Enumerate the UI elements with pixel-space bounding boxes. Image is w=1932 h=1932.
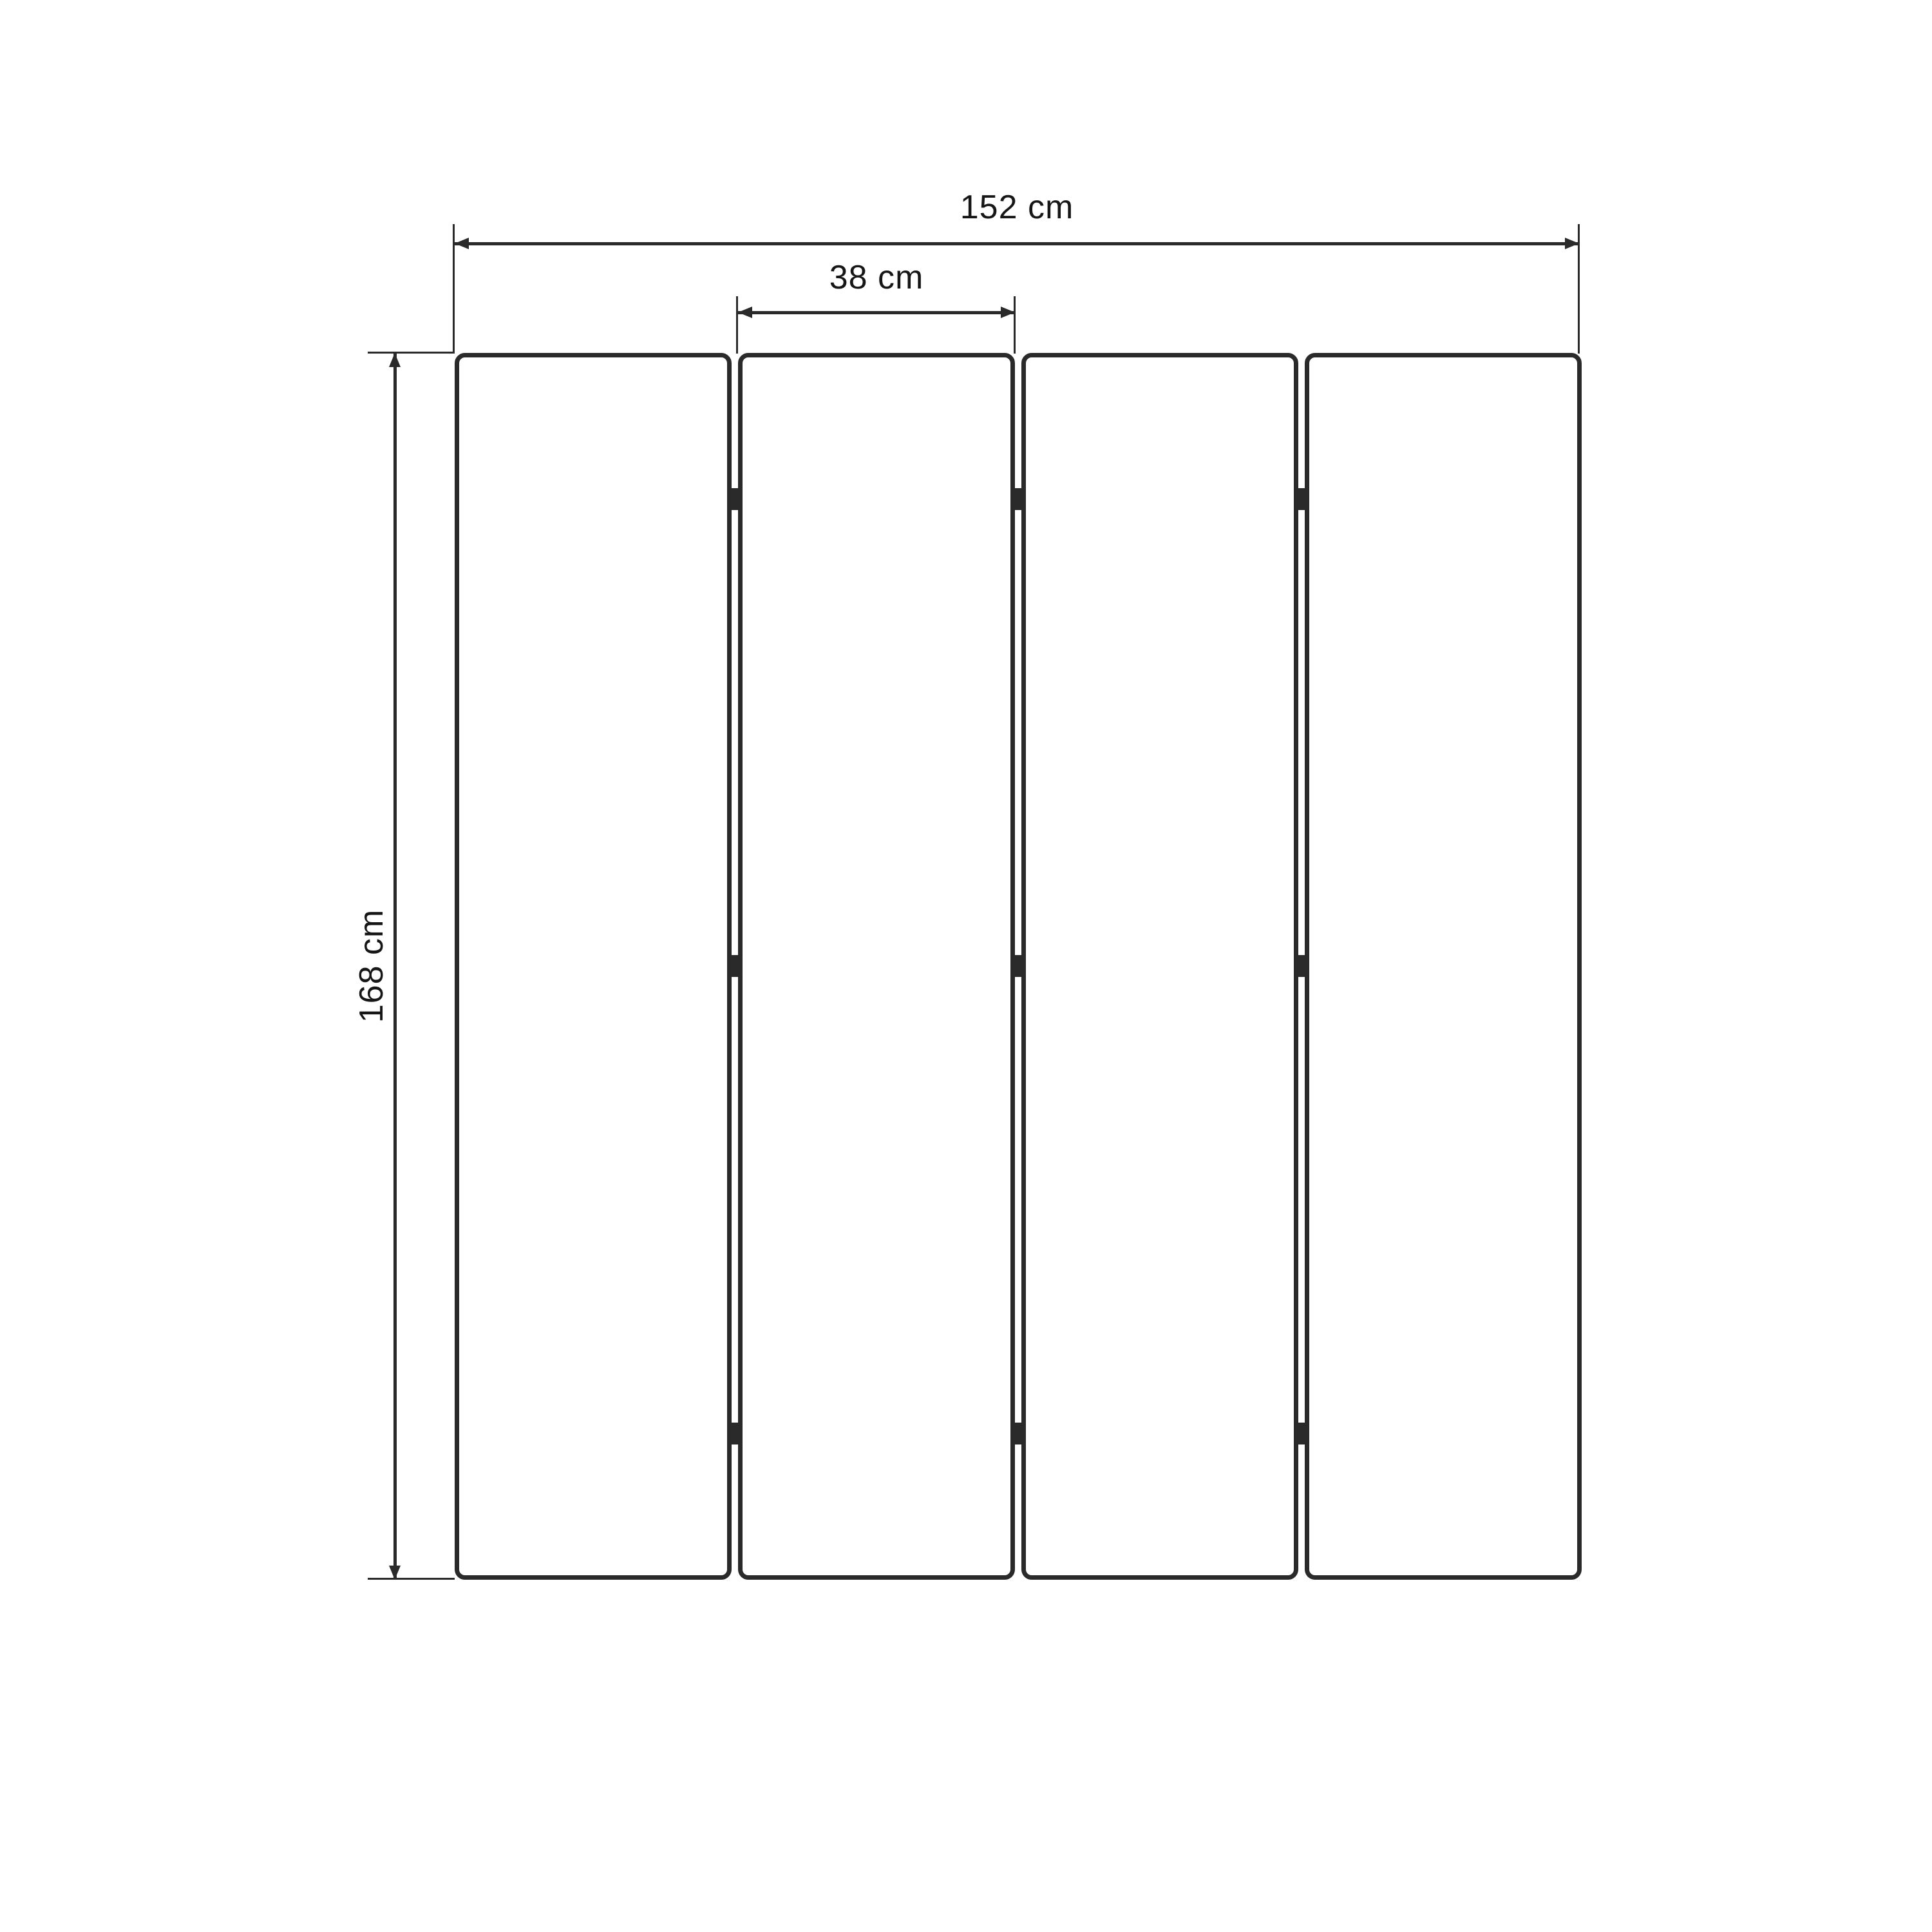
panel-width-dimension-line: [738, 311, 1015, 314]
panel-1: [455, 353, 732, 1580]
panel-width-extension-line-right: [1014, 296, 1016, 354]
height-extension-line-bottom: [368, 1578, 455, 1580]
dimension-drawing-canvas: 152 cm 38 cm 168 cm: [0, 0, 1932, 1932]
panel-width-label: 38 cm: [738, 259, 1015, 296]
height-extension-line-top: [368, 352, 455, 354]
total-width-extension-line-right: [1578, 224, 1580, 354]
height-arrow-up-icon: [389, 353, 401, 367]
total-width-label: 152 cm: [455, 189, 1579, 226]
height-dimension-line: [393, 353, 397, 1580]
panel-4: [1305, 353, 1582, 1580]
height-label: 168 cm: [353, 902, 390, 1030]
total-width-arrow-right-icon: [1565, 238, 1579, 249]
total-width-arrow-left-icon: [455, 238, 469, 249]
panel-width-arrow-right-icon: [1001, 307, 1015, 318]
panel-width-extension-line-left: [736, 296, 738, 354]
panel-width-arrow-left-icon: [738, 307, 752, 318]
panel-2: [738, 353, 1015, 1580]
total-width-dimension-line: [455, 242, 1579, 245]
panel-3: [1021, 353, 1298, 1580]
total-width-extension-line-left: [453, 224, 455, 354]
